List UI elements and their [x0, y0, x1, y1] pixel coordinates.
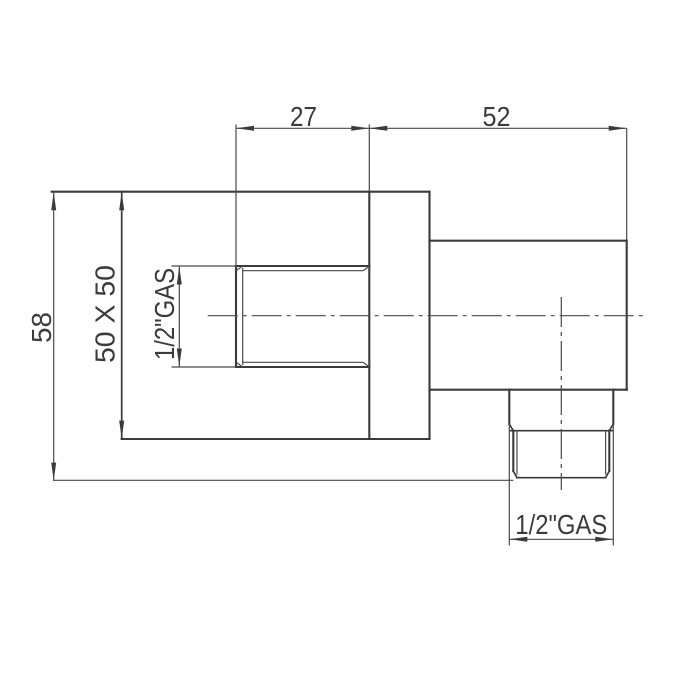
dim-27-arrow-left [236, 126, 254, 131]
dim-label-52: 52 [483, 101, 511, 132]
side-thread-dimension: 1/2"GAS [149, 266, 236, 367]
plate-size-label: 50 X 50 [90, 265, 121, 363]
dim-label-27: 27 [290, 101, 317, 132]
dim-50x50-arrow-top [119, 192, 124, 210]
side-thread [236, 266, 369, 367]
dim-58-arrow-bottom [51, 463, 56, 481]
side-thread-label: 1/2"GAS [149, 268, 180, 360]
dim-52-arrow-left [369, 126, 387, 131]
dim-50x50-arrow-bottom [119, 421, 124, 439]
centerlines [208, 297, 644, 490]
drawing-canvas: 27 52 58 50 X 50 1/2"GAS 1/2"GAS [0, 0, 700, 700]
technical-drawing: 27 52 58 50 X 50 1/2"GAS 1/2"GAS [0, 0, 700, 700]
dim-52-arrow-right [609, 126, 627, 131]
plate-size-dimension: 50 X 50 [90, 192, 125, 439]
dim-label-58: 58 [26, 312, 57, 343]
dim-27-arrow-right [351, 126, 369, 131]
dim-58-arrow-top [51, 192, 56, 210]
bottom-thread-label: 1/2"GAS [515, 509, 607, 540]
